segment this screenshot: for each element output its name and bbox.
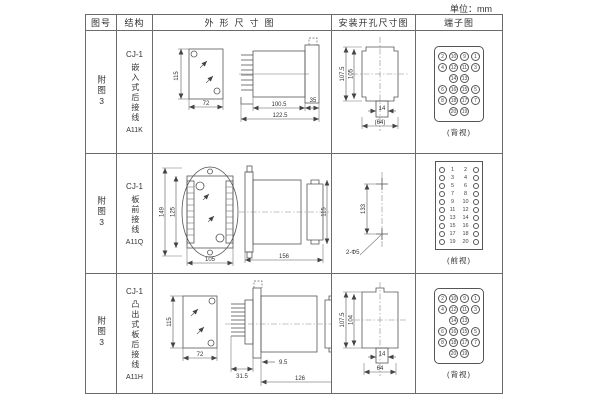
terminal-number: 17: [447, 231, 458, 237]
terminal-pin: [473, 191, 479, 197]
terminal-pin: 2: [438, 294, 447, 303]
terminal-pin: [439, 231, 445, 237]
header-terminal: 端子图: [416, 15, 503, 31]
dim-label: 9.5: [279, 360, 288, 366]
terminal-cell: 1234567891011121314151617181920 (前视): [416, 154, 503, 274]
terminal-pin: [439, 167, 445, 173]
terminal-pin: [473, 223, 479, 229]
header-structure: 结构: [117, 15, 153, 31]
terminal-pin: [473, 183, 479, 189]
terminal-pin: 7: [471, 338, 480, 347]
terminal-view-label: (背视): [447, 127, 471, 138]
terminal-pin: 14: [449, 74, 458, 83]
fig-no-cell: 附图3: [86, 274, 117, 394]
terminal-cell: 2109141211314136161558181772019 (背视): [416, 31, 503, 154]
terminal-number: 10: [460, 199, 471, 205]
dim-label: 104: [349, 314, 355, 325]
terminal-strip-row: 1920: [439, 238, 479, 245]
terminal-pin: 1: [471, 294, 480, 303]
terminal-block-rear: 2109141211314136161558181772019: [434, 288, 484, 364]
terminal-block-rear: 2109141211314136161558181772019: [434, 46, 484, 122]
terminal-pin: 7: [471, 96, 480, 105]
terminal-number: 14: [460, 215, 471, 221]
terminal-number: 13: [447, 215, 458, 221]
terminal-number: 6: [460, 183, 471, 189]
terminal-number: 3: [447, 175, 458, 181]
terminal-pin: 6: [438, 85, 447, 94]
terminal-pin: [439, 191, 445, 197]
dim-label: 107.5: [340, 66, 346, 82]
terminal-pin: 5: [471, 327, 480, 336]
terminal-pin: 4: [438, 305, 447, 314]
dim-label: 125: [171, 206, 177, 217]
terminal-number: 8: [460, 191, 471, 197]
terminal-pin: 10: [449, 52, 458, 61]
terminal-pin: 9: [460, 294, 469, 303]
terminal-number: 4: [460, 175, 471, 181]
terminal-pin: 13: [460, 316, 469, 325]
model-label: CJ-1: [126, 50, 143, 59]
terminal-pin: 19: [460, 107, 469, 116]
terminal-strip-front: 1234567891011121314151617181920: [435, 161, 483, 250]
terminal-pin: [473, 239, 479, 245]
terminal-pin: 13: [460, 74, 469, 83]
terminal-number: 1: [447, 167, 458, 173]
terminal-pin: [473, 231, 479, 237]
table-row-a11k: 附图3 CJ-1 嵌入式后接线 A11K 115 72: [86, 31, 503, 154]
structure-cell: CJ-1 嵌入式后接线 A11K: [117, 31, 153, 154]
terminal-pin: [473, 199, 479, 205]
outline-cell: 115 72 100.5 35: [153, 31, 332, 154]
terminal-strip-row: 1314: [439, 214, 479, 221]
terminal-pin: [473, 167, 479, 173]
install-cell: 133 2-Φ5: [332, 154, 416, 274]
terminal-pin: 4: [438, 63, 447, 72]
terminal-pin: 17: [460, 338, 469, 347]
install-cell: 107.5 104 14 64: [332, 274, 416, 394]
dim-label: 35: [310, 98, 317, 104]
structure-code: A11Q: [126, 239, 143, 246]
terminal-number: 19: [447, 239, 458, 245]
dim-label: 133: [361, 203, 367, 214]
terminal-pin: 14: [449, 316, 458, 325]
dim-label: 72: [197, 352, 204, 358]
terminal-pin: 20: [449, 349, 458, 358]
table-row-a11q: 附图3 CJ-1 板前接线 A11Q: [86, 154, 503, 274]
outline-cell: 149 125 105 156 115: [153, 154, 332, 274]
terminal-pin: 15: [460, 85, 469, 94]
spec-table: 图号 结构 外形尺寸图 安装开孔尺寸图 端子图 附图3 CJ-1 嵌入式后接线 …: [85, 14, 503, 394]
dim-label: 107.5: [340, 312, 346, 328]
dim-label: 100.5: [271, 102, 287, 108]
terminal-pin: [439, 175, 445, 181]
terminal-number: 9: [447, 199, 458, 205]
terminal-pin: 16: [449, 85, 458, 94]
terminal-pin: 9: [460, 52, 469, 61]
terminal-pin: [473, 215, 479, 221]
hole-spec-label: 2-Φ5: [346, 250, 360, 256]
terminal-pin: 19: [460, 349, 469, 358]
terminal-pin: 8: [438, 96, 447, 105]
dim-label: 126: [295, 376, 306, 382]
table-row-a11h: 附图3 CJ-1 凸出式板后接线 A11H 115 72: [86, 274, 503, 394]
terminal-strip-row: 1112: [439, 206, 479, 213]
terminal-pin: 12: [449, 63, 458, 72]
terminal-number: 5: [447, 183, 458, 189]
dim-label: (64): [375, 120, 386, 126]
terminal-strip-row: 34: [439, 174, 479, 181]
terminal-pin: 12: [449, 305, 458, 314]
terminal-number: 16: [460, 223, 471, 229]
terminal-cell: 2109141211314136161558181772019 (背视): [416, 274, 503, 394]
terminal-pin: 3: [471, 305, 480, 314]
model-label: CJ-1: [126, 287, 143, 296]
terminal-number: 2: [460, 167, 471, 173]
structure-cell: CJ-1 凸出式板后接线 A11H: [117, 274, 153, 394]
terminal-number: 12: [460, 207, 471, 213]
fig-no-text: 附图3: [96, 196, 105, 229]
terminal-number: 20: [460, 239, 471, 245]
dim-label: 14: [379, 352, 386, 358]
terminal-number: 11: [447, 207, 458, 213]
terminal-pin: 11: [460, 63, 469, 72]
terminal-pin: [439, 239, 445, 245]
terminal-pin: 17: [460, 96, 469, 105]
dim-label: 115: [174, 71, 180, 81]
dim-label: 31.5: [236, 374, 248, 380]
fig-no-cell: 附图3: [86, 154, 117, 274]
terminal-pin: 5: [471, 85, 480, 94]
structure-code: A11H: [126, 374, 143, 381]
dim-label: 115: [167, 317, 173, 327]
outline-drawing-a11q: 149 125 105 156 115: [153, 158, 331, 270]
terminal-pin: 2: [438, 52, 447, 61]
document-page: { "unit_label": "单位：mm", "headers": { "f…: [0, 0, 600, 400]
install-drawing-a11h: 107.5 104 14 64: [332, 274, 415, 393]
terminal-pin: 15: [460, 327, 469, 336]
dim-label: 64: [377, 366, 384, 372]
terminal-pin: 11: [460, 305, 469, 314]
terminal-number: 15: [447, 223, 458, 229]
terminal-pin: 3: [471, 63, 480, 72]
dim-label: 72: [203, 101, 210, 107]
fig-no-text: 附图3: [96, 75, 105, 108]
terminal-strip-row: 78: [439, 190, 479, 197]
terminal-strip-row: 1718: [439, 230, 479, 237]
dim-label: 115: [322, 206, 328, 216]
terminal-pin: 6: [438, 327, 447, 336]
terminal-pin: [473, 175, 479, 181]
terminal-pin: 18: [449, 96, 458, 105]
terminal-strip-row: 56: [439, 182, 479, 189]
terminal-pin: 16: [449, 327, 458, 336]
outline-drawing-a11h: 115 72 31.5: [153, 274, 331, 393]
install-cell: 107.5 105 14 (64): [332, 31, 416, 154]
terminal-pin: 8: [438, 338, 447, 347]
install-drawing-a11q: 133 2-Φ5: [332, 158, 415, 270]
dim-label: 14: [379, 106, 386, 112]
structure-label: 凸出式板后接线: [130, 300, 139, 370]
fig-no-text: 附图3: [96, 316, 105, 349]
model-label: CJ-1: [126, 182, 143, 191]
terminal-pin: [439, 207, 445, 213]
install-drawing-a11k: 107.5 105 14 (64): [332, 31, 415, 153]
terminal-pin: [439, 183, 445, 189]
terminal-strip-row: 1516: [439, 222, 479, 229]
terminal-pin: [473, 207, 479, 213]
terminal-pin: [439, 215, 445, 221]
terminal-pin: 1: [471, 52, 480, 61]
terminal-number: 18: [460, 231, 471, 237]
terminal-pin: [439, 223, 445, 229]
dim-label: 122.5: [272, 113, 288, 119]
structure-label: 板前接线: [130, 195, 139, 235]
terminal-view-label: (背视): [447, 369, 471, 380]
header-fig-no: 图号: [86, 15, 117, 31]
terminal-view-label: (前视): [447, 255, 471, 266]
terminal-pin: 10: [449, 294, 458, 303]
outline-drawing-a11k: 115 72 100.5 35: [153, 31, 331, 153]
fig-no-cell: 附图3: [86, 31, 117, 154]
header-outline: 外形尺寸图: [153, 15, 332, 31]
dim-label: 105: [205, 257, 216, 263]
terminal-number: 7: [447, 191, 458, 197]
terminal-pin: [439, 199, 445, 205]
terminal-pin: 18: [449, 338, 458, 347]
terminal-pin: 20: [449, 107, 458, 116]
structure-label: 嵌入式后接线: [130, 63, 139, 123]
structure-code: A11K: [126, 127, 143, 134]
dim-label: 156: [279, 254, 290, 260]
header-install: 安装开孔尺寸图: [332, 15, 416, 31]
header-row: 图号 结构 外形尺寸图 安装开孔尺寸图 端子图: [86, 15, 503, 31]
structure-cell: CJ-1 板前接线 A11Q: [117, 154, 153, 274]
terminal-strip-row: 910: [439, 198, 479, 205]
outline-cell: 115 72 31.5: [153, 274, 332, 394]
dim-label: 105: [349, 68, 355, 79]
dim-label: 149: [160, 206, 166, 217]
terminal-strip-row: 12: [439, 166, 479, 173]
